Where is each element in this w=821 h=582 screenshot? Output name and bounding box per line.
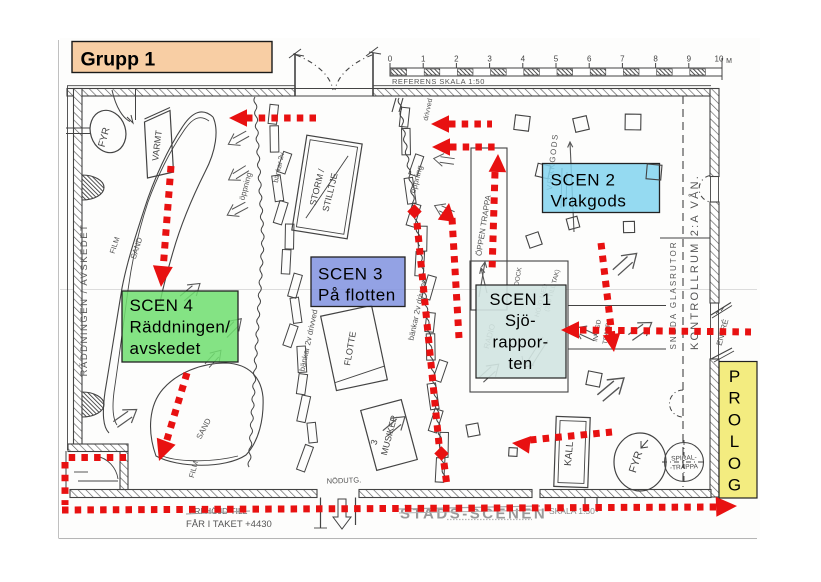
svg-text:G: G [728, 476, 741, 495]
svg-text:5: 5 [554, 55, 559, 64]
svg-text:SPIRAL-: SPIRAL- [671, 454, 697, 462]
svg-text:ten: ten [508, 355, 532, 373]
svg-text:KALL: KALL [563, 441, 576, 467]
svg-text:10: 10 [715, 55, 724, 64]
svg-text:avskedet: avskedet [130, 339, 201, 358]
svg-text:0: 0 [388, 55, 393, 64]
svg-text:8: 8 [653, 55, 658, 64]
svg-text:L: L [730, 432, 739, 451]
svg-text:KONTROLLRUM 2:A VÅN.: KONTROLLRUM 2:A VÅN. [688, 174, 701, 350]
svg-text:REFERENS SKALA 1:50: REFERENS SKALA 1:50 [392, 77, 485, 86]
svg-text:P: P [729, 367, 740, 386]
svg-text:SCEN 4: SCEN 4 [130, 296, 194, 315]
svg-text:O: O [728, 410, 741, 429]
svg-text:7: 7 [620, 55, 625, 64]
svg-text:Vrakgods: Vrakgods [551, 192, 627, 211]
svg-text:4: 4 [521, 55, 526, 64]
svg-text:Räddningen/: Räddningen/ [130, 318, 231, 337]
svg-text:rappor-: rappor- [493, 334, 549, 352]
svg-text:RÄDDNINGEN / AVSKEDET: RÄDDNINGEN / AVSKEDET [79, 224, 90, 377]
svg-text:NÖDUTG.: NÖDUTG. [326, 475, 361, 485]
svg-text:O: O [728, 454, 741, 473]
svg-text:På flotten: På flotten [318, 286, 396, 305]
svg-text:SCEN 2: SCEN 2 [551, 171, 616, 190]
svg-text:R: R [728, 389, 740, 408]
svg-text:9: 9 [687, 55, 692, 64]
svg-text:3: 3 [487, 55, 492, 64]
svg-text:SCEN 1: SCEN 1 [489, 291, 551, 309]
svg-text:Sjö-: Sjö- [505, 312, 536, 330]
svg-text:FÅR I TAKET +4430: FÅR I TAKET +4430 [186, 519, 272, 530]
svg-text:1: 1 [421, 55, 426, 64]
svg-text:2: 2 [454, 55, 459, 64]
svg-text:6: 6 [587, 55, 592, 64]
svg-text:M: M [726, 58, 732, 65]
svg-text:SCEN 3: SCEN 3 [318, 265, 383, 284]
svg-text:Grupp 1: Grupp 1 [81, 49, 156, 71]
svg-text:-TRAPPA: -TRAPPA [670, 463, 699, 471]
